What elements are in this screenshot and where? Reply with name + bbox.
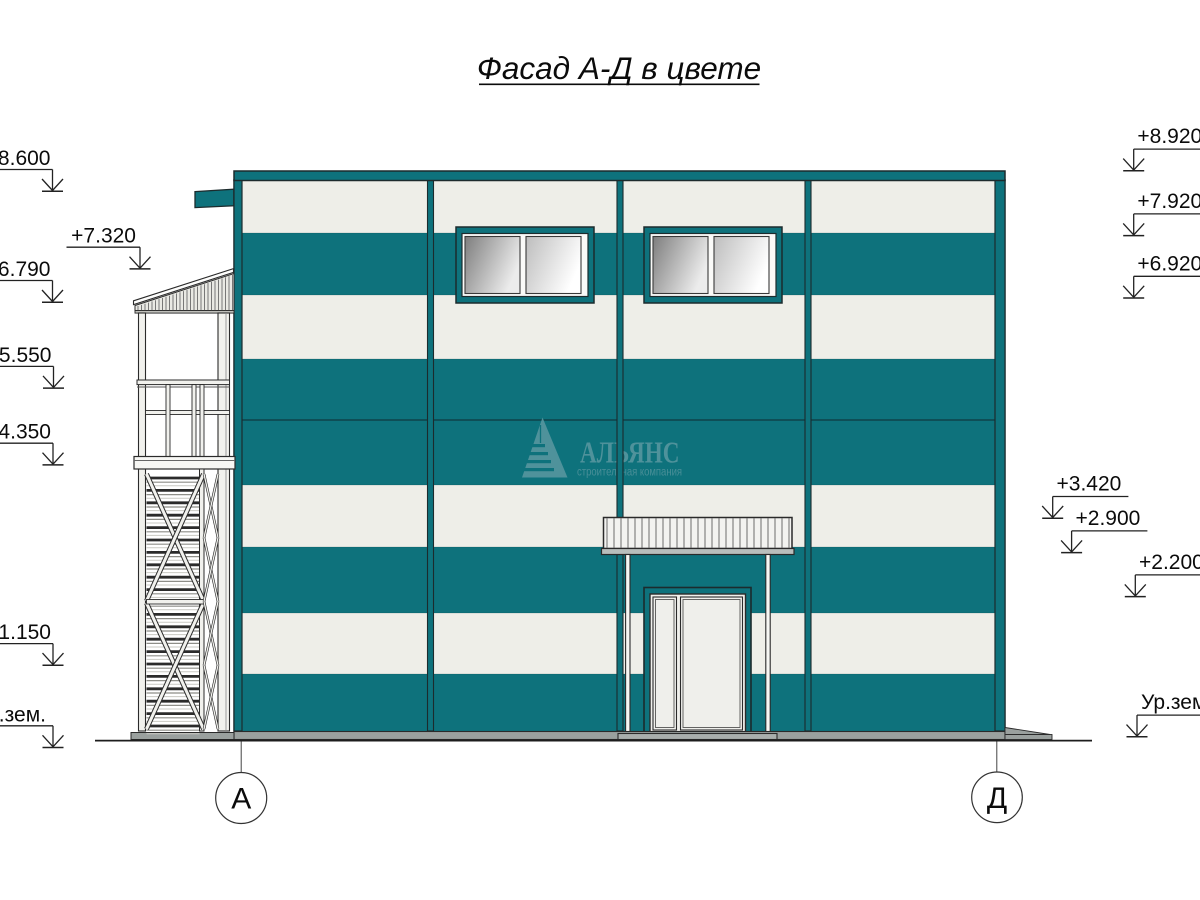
svg-text:+6.920: +6.920 xyxy=(1137,252,1200,275)
svg-text:Д: Д xyxy=(987,782,1007,815)
svg-text:+7.320: +7.320 xyxy=(71,225,136,248)
svg-text:+6.790: +6.790 xyxy=(0,258,51,281)
svg-text:+4.350: +4.350 xyxy=(0,421,51,444)
svg-text:+8.920: +8.920 xyxy=(1137,125,1200,148)
svg-text:+8.600: +8.600 xyxy=(0,147,51,170)
svg-text:+2.200: +2.200 xyxy=(1139,551,1200,574)
svg-text:строительная компания: строительная компания xyxy=(577,467,682,479)
svg-text:Ур.зем.: Ур.зем. xyxy=(0,703,46,726)
svg-text:Фасад А-Д в цвете: Фасад А-Д в цвете xyxy=(477,50,761,86)
svg-text:+3.420: +3.420 xyxy=(1057,473,1122,496)
svg-text:+5.550: +5.550 xyxy=(0,344,52,367)
svg-text:+7.920: +7.920 xyxy=(1137,190,1200,213)
svg-text:А: А xyxy=(231,783,251,816)
svg-text:+1.150: +1.150 xyxy=(0,621,51,644)
svg-text:АЛЬЯНС: АЛЬЯНС xyxy=(580,435,680,470)
svg-text:Ур.зем.: Ур.зем. xyxy=(1141,691,1200,714)
svg-text:+2.900: +2.900 xyxy=(1076,507,1141,530)
